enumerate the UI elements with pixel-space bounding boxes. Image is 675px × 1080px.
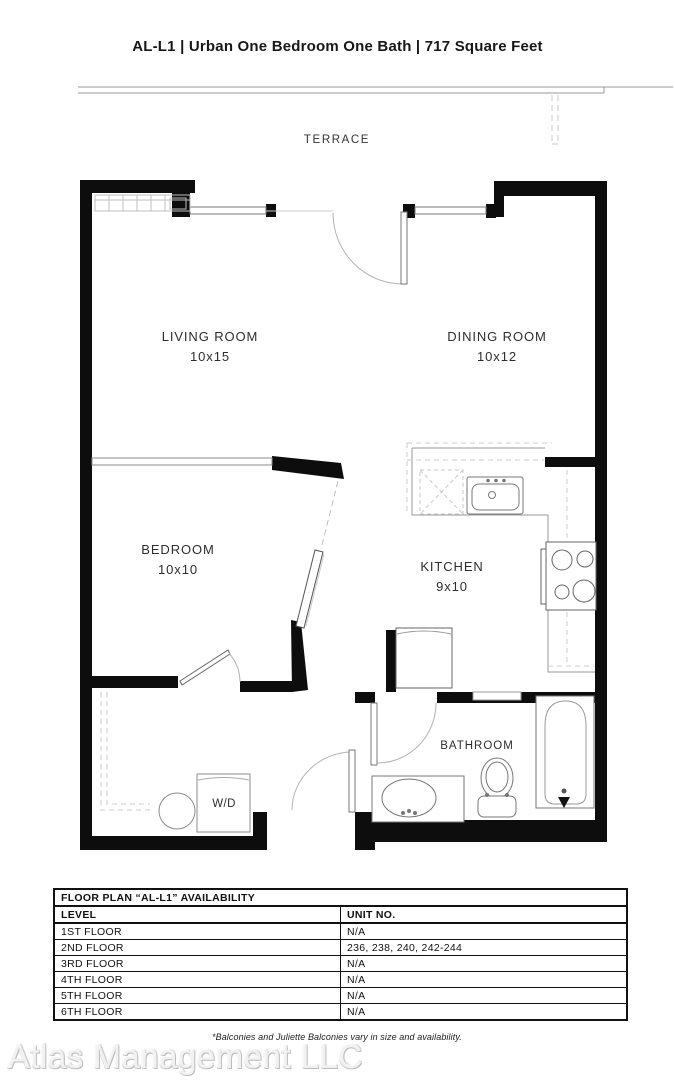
kitchen-label: KITCHEN 9x10 bbox=[420, 557, 483, 597]
table-title: FLOOR PLAN “AL-L1” AVAILABILITY bbox=[54, 889, 627, 906]
terrace-lines bbox=[78, 87, 673, 144]
bathtub bbox=[536, 696, 594, 808]
col-header-unit-no: UNIT NO. bbox=[341, 906, 628, 923]
bedroom-partition-wall bbox=[92, 458, 272, 465]
table-row-6th-floor: 6TH FLOOR N/A bbox=[54, 1004, 627, 1021]
refrigerator bbox=[396, 628, 452, 688]
table-row-5th-floor: 5TH FLOOR N/A bbox=[54, 988, 627, 1004]
kitchen-dims: 9x10 bbox=[420, 577, 483, 597]
living-room-dims: 10x15 bbox=[162, 347, 259, 367]
stove bbox=[541, 542, 596, 610]
windows bbox=[190, 207, 486, 214]
units-cell: N/A bbox=[341, 956, 628, 972]
dining-room-dims: 10x12 bbox=[447, 347, 546, 367]
terrace-label: TERRACE bbox=[304, 130, 370, 150]
table-row-3rd-floor: 3RD FLOOR N/A bbox=[54, 956, 627, 972]
kitchen-sink bbox=[467, 477, 523, 514]
dishwasher bbox=[420, 470, 463, 514]
level-cell: 2ND FLOOR bbox=[54, 940, 341, 956]
units-cell: N/A bbox=[341, 972, 628, 988]
bedroom-name: BEDROOM bbox=[141, 542, 214, 557]
bedroom-door bbox=[180, 650, 240, 685]
level-cell: 5TH FLOOR bbox=[54, 988, 341, 1004]
footnote: *Balconies and Juliette Balconies vary i… bbox=[212, 1032, 462, 1042]
bedroom-dims: 10x10 bbox=[141, 560, 214, 580]
units-cell: N/A bbox=[341, 923, 628, 940]
level-cell: 3RD FLOOR bbox=[54, 956, 341, 972]
terrace-door bbox=[266, 211, 407, 284]
watermark: Atlas Management LLC bbox=[8, 1038, 363, 1076]
table-row-4th-floor: 4TH FLOOR N/A bbox=[54, 972, 627, 988]
kitchen-name: KITCHEN bbox=[420, 559, 483, 574]
dining-room-label: DINING ROOM 10x12 bbox=[447, 327, 546, 367]
table-title-row: FLOOR PLAN “AL-L1” AVAILABILITY bbox=[54, 889, 627, 906]
level-cell: 4TH FLOOR bbox=[54, 972, 341, 988]
closet-dashed-rod bbox=[101, 692, 150, 810]
bedroom-label: BEDROOM 10x10 bbox=[141, 540, 214, 580]
water-heater bbox=[159, 793, 195, 829]
living-room-label: LIVING ROOM 10x15 bbox=[162, 327, 259, 367]
toilet bbox=[478, 758, 516, 817]
level-cell: 6TH FLOOR bbox=[54, 1004, 341, 1021]
table-header-row: LEVEL UNIT NO. bbox=[54, 906, 627, 923]
units-cell: N/A bbox=[341, 988, 628, 1004]
living-room-name: LIVING ROOM bbox=[162, 329, 259, 344]
bathroom-vanity bbox=[372, 776, 464, 822]
availability-table: FLOOR PLAN “AL-L1” AVAILABILITY LEVEL UN… bbox=[53, 888, 628, 1021]
floor-plan-page: AL-L1 | Urban One Bedroom One Bath | 717… bbox=[0, 0, 675, 1080]
bathroom-door bbox=[371, 703, 436, 765]
col-header-level: LEVEL bbox=[54, 906, 341, 923]
units-cell: N/A bbox=[341, 1004, 628, 1021]
table-row-1st-floor: 1ST FLOOR N/A bbox=[54, 923, 627, 940]
bathroom-label: BATHROOM bbox=[440, 736, 514, 756]
dining-room-name: DINING ROOM bbox=[447, 329, 546, 344]
entry-door bbox=[292, 750, 355, 812]
bedroom-sliding-door bbox=[296, 481, 338, 628]
units-cell: 236, 238, 240, 242-244 bbox=[341, 940, 628, 956]
bathroom-niche bbox=[473, 692, 521, 700]
level-cell: 1ST FLOOR bbox=[54, 923, 341, 940]
table-row-2nd-floor: 2ND FLOOR 236, 238, 240, 242-244 bbox=[54, 940, 627, 956]
washer-dryer-label: W/D bbox=[212, 794, 236, 814]
